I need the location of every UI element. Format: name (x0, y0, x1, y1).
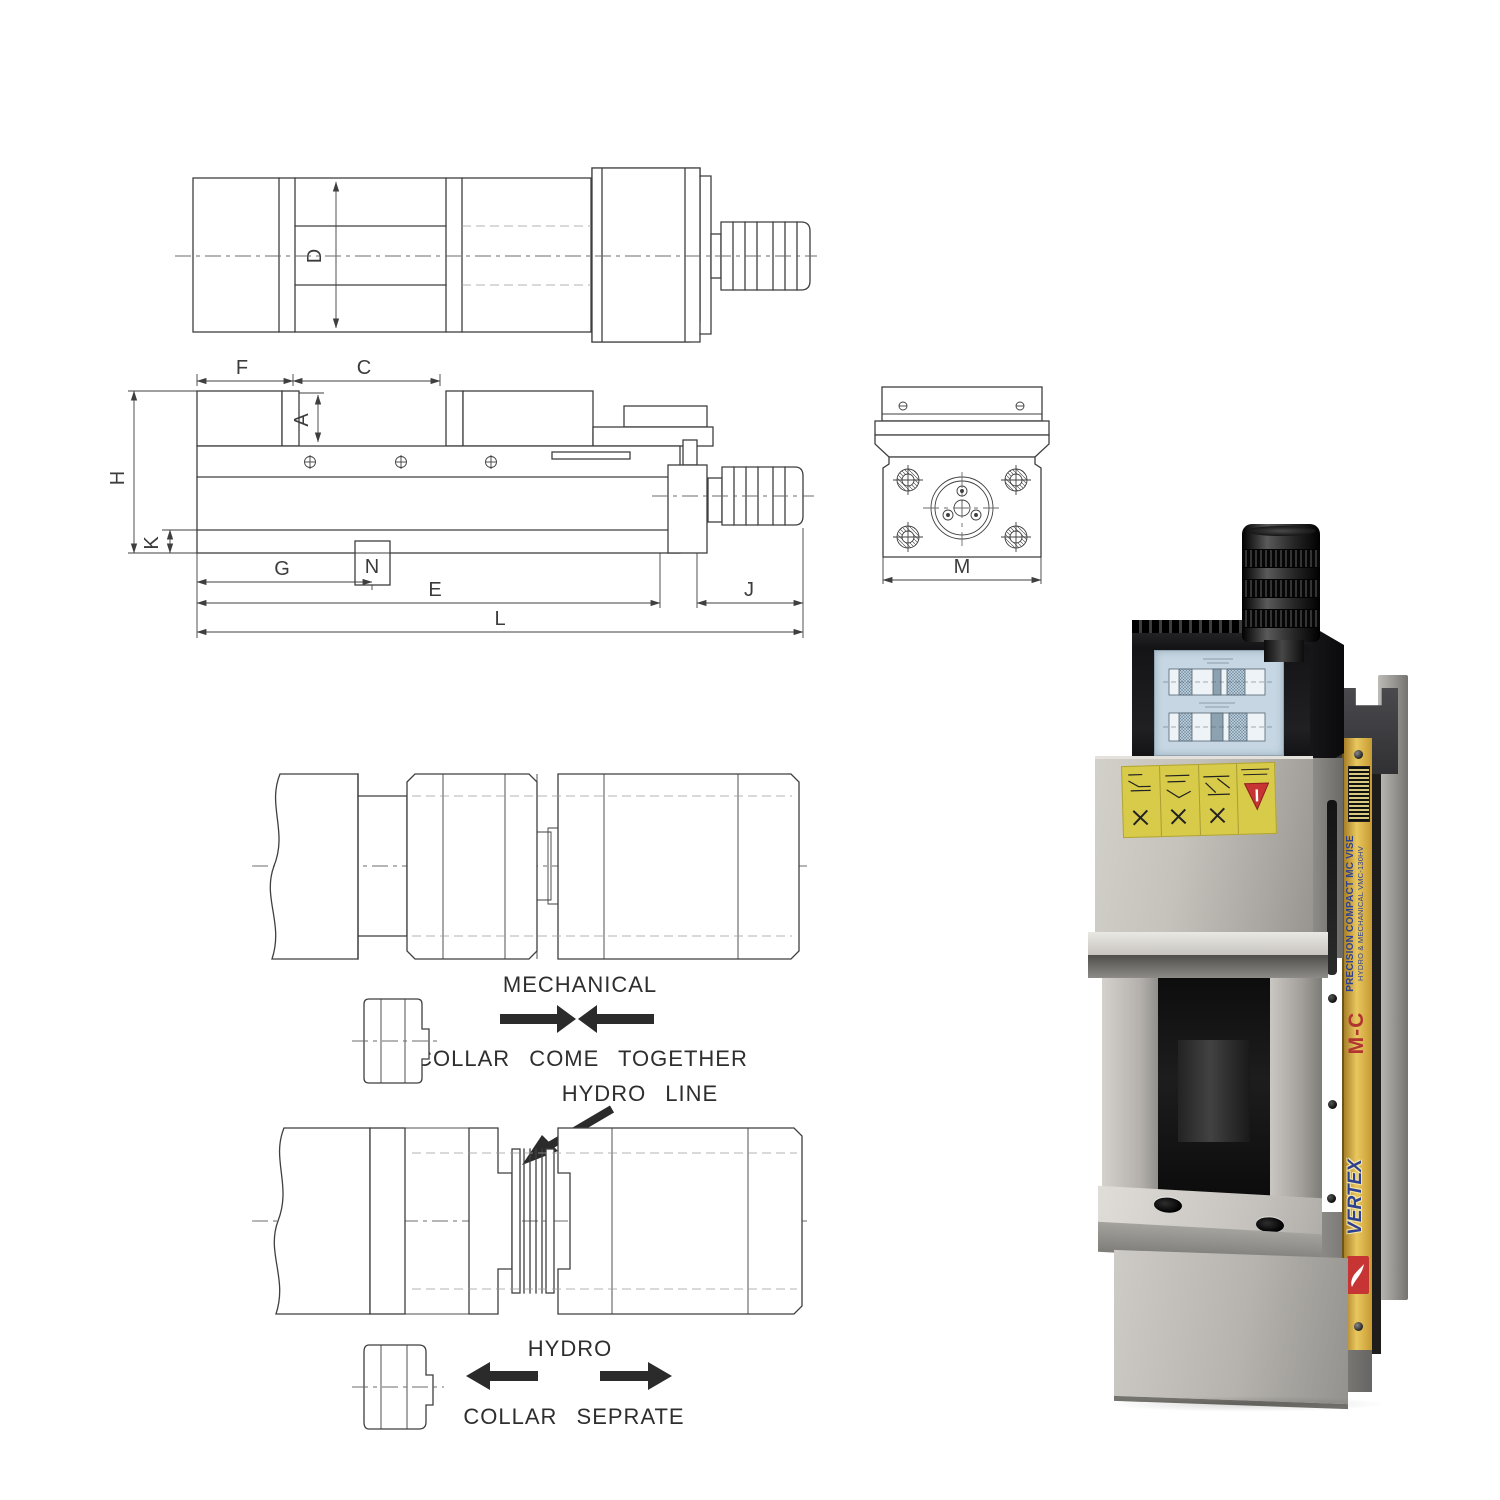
dim-label-j: J (744, 579, 754, 601)
base-bolt-hole-1 (1154, 1197, 1182, 1214)
mid-ledge-shadow (1088, 955, 1328, 978)
dim-label-l: L (494, 608, 505, 630)
channel-slide-block (1178, 1040, 1250, 1142)
knob-neck (1264, 640, 1304, 662)
dim-label-h: H (107, 471, 129, 485)
floor-shadow (1106, 1396, 1386, 1412)
hydro-title: HYDRO (528, 1336, 612, 1361)
dim-label-c: C (357, 358, 371, 379)
mechanical-collar-detail: MECHANICAL COLLAR COME TOGETHER (222, 736, 822, 1088)
strip-title: PRECISION COMPACT MC VISE (1346, 826, 1357, 1001)
strip-title-block: PRECISION COMPACT MC VISE HYDRO & MECHAN… (1346, 826, 1364, 1001)
product-photo: PRECISION COMPACT MC VISE HYDRO & MECHAN… (1080, 512, 1452, 1417)
arrows-come-together-icon (500, 1005, 654, 1033)
dim-label-a: A (291, 413, 313, 427)
mid-ledge-top (1088, 932, 1328, 955)
barcode-icon (1348, 766, 1370, 822)
vertex-bird-logo-icon (1347, 1256, 1369, 1294)
warning-panel-2 (1160, 765, 1200, 836)
mechanical-title: MECHANICAL (503, 972, 657, 997)
warning-panel-3 (1199, 764, 1239, 835)
hydro-caption: COLLAR SEPRATE (463, 1404, 684, 1429)
strip-screw-top (1354, 750, 1363, 759)
clamp-knob (1242, 524, 1320, 642)
side-hole-1 (1328, 994, 1337, 1003)
hydro-line-callout: HYDRO LINE (562, 1081, 718, 1106)
strip-series-code: M-C (1346, 1010, 1368, 1056)
instruction-label-diagrams (1155, 651, 1283, 755)
hydro-collar-detail: HYDRO LINE HYDRO COLLAR SEPRATE (222, 1053, 822, 1445)
warning-panel-1 (1122, 766, 1162, 837)
dim-label-g: G (274, 558, 290, 580)
dim-label-e: E (428, 579, 441, 601)
side-view-drawing: F C A H K N G E (92, 358, 822, 648)
knurl-band-3 (1242, 610, 1320, 627)
knurl-band-2 (1242, 580, 1320, 597)
end-view-drawing: M (855, 372, 1075, 602)
dim-label-m: M (954, 556, 971, 578)
strip-brand-logo: VERTEX (1346, 1146, 1366, 1248)
center-channel (1158, 978, 1270, 1218)
warning-label (1121, 762, 1277, 838)
side-hole-2 (1328, 1100, 1337, 1109)
base-block (1114, 1250, 1348, 1409)
strip-subtitle: HYDRO & MECHANICAL VMC-130HV (1357, 826, 1365, 1001)
top-view-drawing: D (105, 146, 820, 351)
side-hole-3 (1327, 1194, 1336, 1203)
dim-label-k: K (141, 536, 163, 550)
column-right-wall (1270, 978, 1322, 1218)
arrows-separate-icon (466, 1362, 672, 1390)
dim-label-n: N (365, 556, 379, 578)
warning-panel-caution (1237, 763, 1276, 834)
collar-piece-detail-2 (352, 1345, 444, 1429)
side-slot (1327, 800, 1337, 975)
dim-label-f: F (236, 358, 248, 379)
knurl-band-1 (1242, 550, 1320, 567)
head-box-side-face (1308, 624, 1344, 774)
catalog-page: D F C A H K N (0, 0, 1500, 1500)
instruction-label (1154, 650, 1284, 756)
strip-screw-bottom (1354, 1322, 1363, 1331)
